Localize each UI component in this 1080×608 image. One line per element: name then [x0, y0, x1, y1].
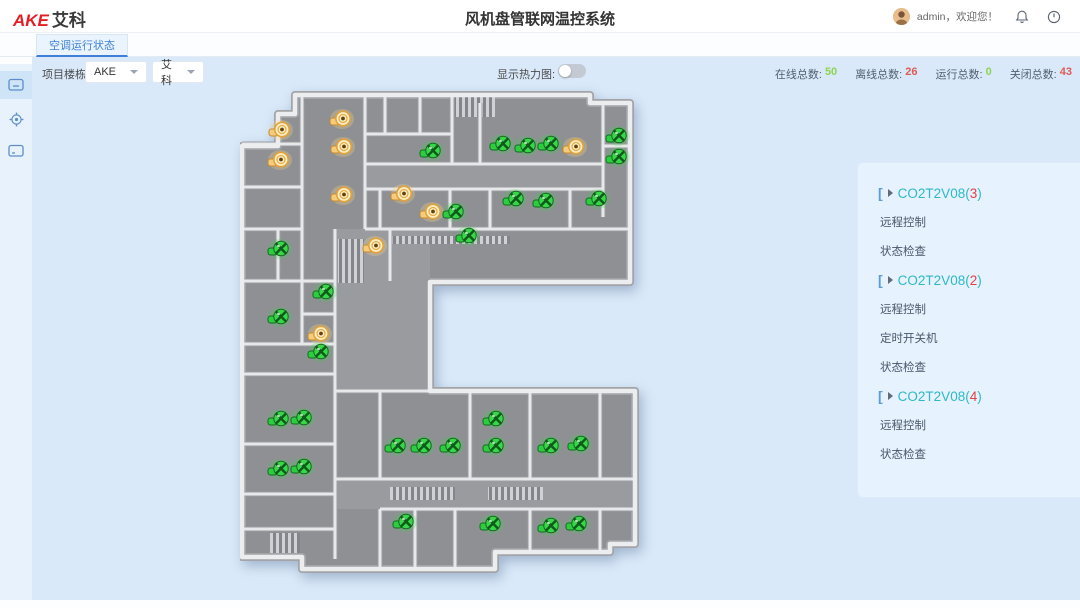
stat-label: 运行总数: [936, 66, 983, 82]
bracket-icon: [ [878, 185, 883, 201]
building-select-value: AKE [94, 66, 116, 78]
stat-label: 离线总数: [855, 66, 902, 82]
tab-label: 空调运行状态 [49, 37, 115, 53]
fan-unit-running[interactable] [568, 434, 592, 454]
expand-arrow-icon [888, 189, 893, 197]
menu-item-remote-control[interactable]: 远程控制 [880, 214, 1060, 230]
fan-unit-running[interactable] [566, 514, 590, 534]
fan-unit-warning[interactable] [391, 184, 415, 204]
fan-unit-warning[interactable] [308, 324, 332, 344]
stat-value: 26 [905, 66, 917, 82]
stat-value: 0 [986, 66, 992, 82]
device-group-name: CO2T2V08(2) [898, 273, 982, 288]
fan-unit-warning[interactable] [331, 137, 355, 157]
device-group: [ CO2T2V08(4) 远程控制 状态检查 [878, 388, 1060, 462]
area-select[interactable]: 艾科 [152, 61, 204, 83]
fan-unit-running[interactable] [456, 226, 480, 246]
stat-closed: 关闭总数: 43 [1010, 66, 1072, 82]
fan-unit-running[interactable] [385, 436, 409, 456]
device-group-name: CO2T2V08(4) [898, 389, 982, 404]
device-panel: [ CO2T2V08(3) 远程控制 状态检查 [ CO2T2V08(2) 远程… [857, 162, 1080, 498]
sidebar-item-monitor[interactable] [0, 71, 32, 99]
fan-unit-running[interactable] [483, 409, 507, 429]
console-icon [8, 144, 24, 158]
menu-item-status-check[interactable]: 状态检查 [880, 446, 1060, 462]
menu-item-remote-control[interactable]: 远程控制 [880, 417, 1060, 433]
tab-ac-running-status[interactable]: 空调运行状态 [36, 34, 128, 57]
fan-unit-running[interactable] [538, 134, 562, 154]
fan-unit-running[interactable] [291, 408, 315, 428]
menu-item-remote-control[interactable]: 远程控制 [880, 301, 1060, 317]
fan-unit-running[interactable] [606, 147, 630, 167]
fan-unit-running[interactable] [503, 189, 527, 209]
building-filter-label: 项目楼栋: [42, 66, 89, 82]
area-select-value: 艾科 [161, 56, 181, 88]
stat-label: 关闭总数: [1010, 66, 1057, 82]
stat-value: 50 [825, 66, 837, 82]
fan-unit-running[interactable] [443, 202, 467, 222]
fan-unit-warning[interactable] [363, 236, 387, 256]
fan-unit-running[interactable] [538, 436, 562, 456]
app-window: AKE艾科 风机盘管联网温控系统 admin，欢迎您！ 空调运行状态 [0, 0, 1080, 608]
bottom-strip [0, 600, 1080, 608]
avatar [893, 8, 910, 25]
heatmap-toggle-label: 显示热力图: [497, 66, 555, 82]
fan-unit-running[interactable] [268, 239, 292, 259]
fan-unit-running[interactable] [393, 512, 417, 532]
fan-unit-running[interactable] [586, 189, 610, 209]
stat-label: 在线总数: [775, 66, 822, 82]
device-group-header[interactable]: [ CO2T2V08(2) [878, 272, 1060, 288]
sidebar-item-settings[interactable] [0, 105, 32, 133]
stat-running: 运行总数: 0 [936, 66, 992, 82]
fan-unit-warning[interactable] [420, 202, 444, 222]
expand-arrow-icon [888, 392, 893, 400]
chevron-down-icon [130, 70, 138, 74]
fan-unit-warning[interactable] [330, 109, 354, 129]
bracket-icon: [ [878, 272, 883, 288]
fan-unit-running[interactable] [440, 436, 464, 456]
status-summary: 在线总数: 50 离线总数: 26 运行总数: 0 关闭总数: 43 [775, 66, 1072, 82]
fan-unit-running[interactable] [291, 457, 315, 477]
stat-value: 43 [1060, 66, 1072, 82]
sidebar-item-console[interactable] [0, 137, 32, 165]
left-sidebar [0, 33, 32, 600]
fan-unit-running[interactable] [411, 436, 435, 456]
fan-unit-running[interactable] [515, 136, 539, 156]
fan-unit-warning[interactable] [563, 137, 587, 157]
fan-unit-running[interactable] [268, 409, 292, 429]
fan-unit-running[interactable] [420, 141, 444, 161]
fan-unit-warning[interactable] [331, 185, 355, 205]
device-group-name: CO2T2V08(3) [898, 186, 982, 201]
bracket-icon: [ [878, 388, 883, 404]
fan-unit-running[interactable] [268, 307, 292, 327]
device-group: [ CO2T2V08(2) 远程控制 定时开关机 状态检查 [878, 272, 1060, 375]
fan-unit-running[interactable] [490, 134, 514, 154]
fan-unit-running[interactable] [268, 459, 292, 479]
fan-unit-running[interactable] [483, 436, 507, 456]
device-group-header[interactable]: [ CO2T2V08(3) [878, 185, 1060, 201]
menu-item-status-check[interactable]: 状态检查 [880, 243, 1060, 259]
menu-item-status-check[interactable]: 状态检查 [880, 359, 1060, 375]
fan-unit-running[interactable] [533, 191, 557, 211]
fan-unit-running[interactable] [538, 516, 562, 536]
device-group-header[interactable]: [ CO2T2V08(4) [878, 388, 1060, 404]
toggle-knob [559, 65, 571, 77]
user-menu[interactable]: admin，欢迎您！ [893, 8, 998, 25]
building-select[interactable]: AKE [85, 61, 147, 83]
power-icon[interactable] [1046, 9, 1062, 25]
fan-unit-warning[interactable] [269, 120, 293, 140]
username-text: admin，欢迎您！ [917, 9, 998, 24]
stat-offline: 离线总数: 26 [855, 66, 917, 82]
menu-item-scheduled-power[interactable]: 定时开关机 [880, 330, 1060, 346]
stat-online: 在线总数: 50 [775, 66, 837, 82]
floor-plan [240, 88, 640, 582]
fan-unit-running[interactable] [313, 282, 337, 302]
fan-unit-running[interactable] [480, 514, 504, 534]
notification-bell-icon[interactable] [1014, 9, 1030, 25]
fan-unit-warning[interactable] [268, 150, 292, 170]
fan-unit-running[interactable] [606, 126, 630, 146]
chevron-down-icon [187, 70, 195, 74]
heatmap-toggle[interactable] [558, 64, 586, 78]
fan-unit-running[interactable] [308, 342, 332, 362]
expand-arrow-icon [888, 276, 893, 284]
monitor-icon [8, 78, 24, 92]
top-header: AKE艾科 风机盘管联网温控系统 admin，欢迎您！ [0, 0, 1080, 33]
device-group: [ CO2T2V08(3) 远程控制 状态检查 [878, 185, 1060, 259]
gear-icon [9, 112, 24, 127]
tab-bar: 空调运行状态 [0, 33, 1080, 57]
